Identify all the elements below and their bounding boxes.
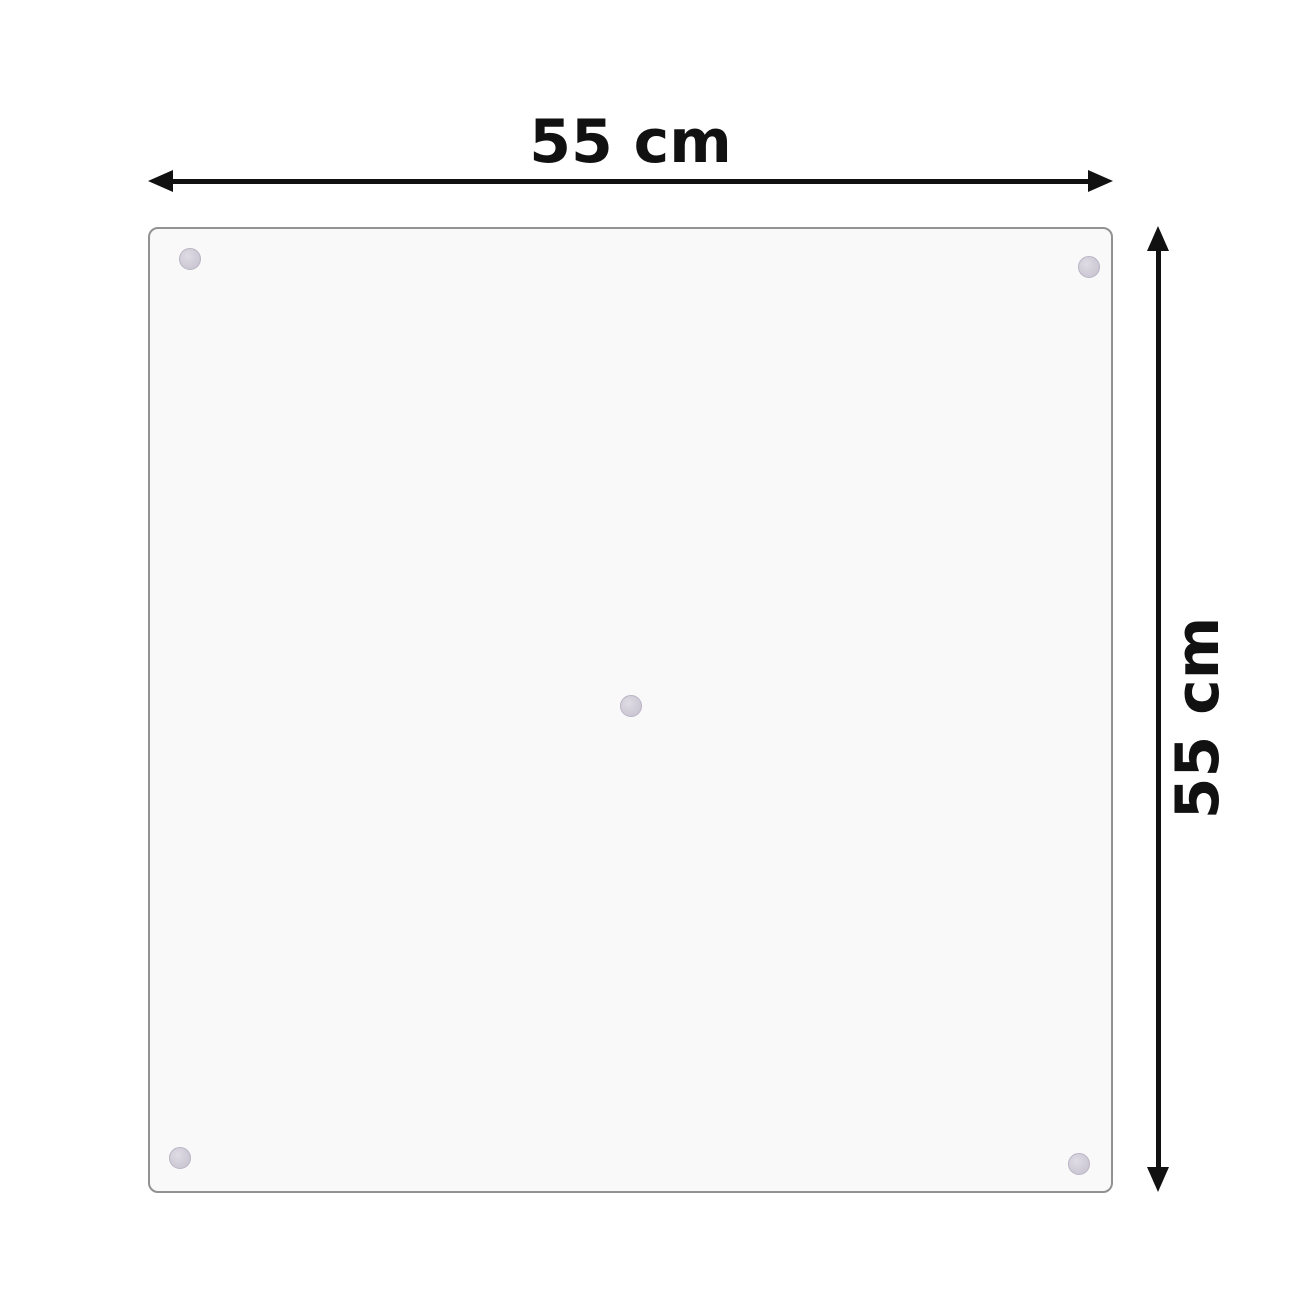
arrowhead-right-icon	[1088, 170, 1113, 192]
width-dimension-label: 55 cm	[148, 112, 1113, 172]
arrow-shaft	[1156, 251, 1161, 1167]
width-dimension-arrow	[148, 170, 1113, 192]
suction-cup-dot-center	[620, 695, 642, 717]
arrowhead-down-icon	[1147, 1167, 1169, 1192]
suction-cup-dot-top-right	[1078, 256, 1100, 278]
suction-cup-dot-bottom-right	[1068, 1153, 1090, 1175]
suction-cup-dot-bottom-left	[169, 1147, 191, 1169]
height-dimension-label: 55 cm	[1168, 617, 1228, 819]
suction-cup-dot-top-left	[179, 248, 201, 270]
arrow-shaft	[173, 179, 1088, 184]
dimension-diagram: 55 cm 55 cm	[0, 0, 1300, 1300]
arrowhead-up-icon	[1147, 226, 1169, 251]
arrowhead-left-icon	[148, 170, 173, 192]
glass-panel	[148, 227, 1113, 1193]
